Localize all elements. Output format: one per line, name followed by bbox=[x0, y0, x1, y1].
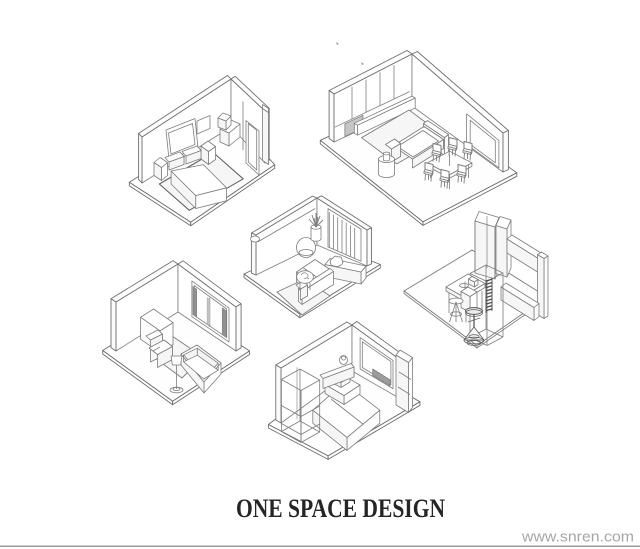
svg-text:ONE SPACE DESIGN: ONE SPACE DESIGN bbox=[236, 494, 445, 523]
svg-text:www.snren.com: www.snren.com bbox=[521, 530, 634, 546]
